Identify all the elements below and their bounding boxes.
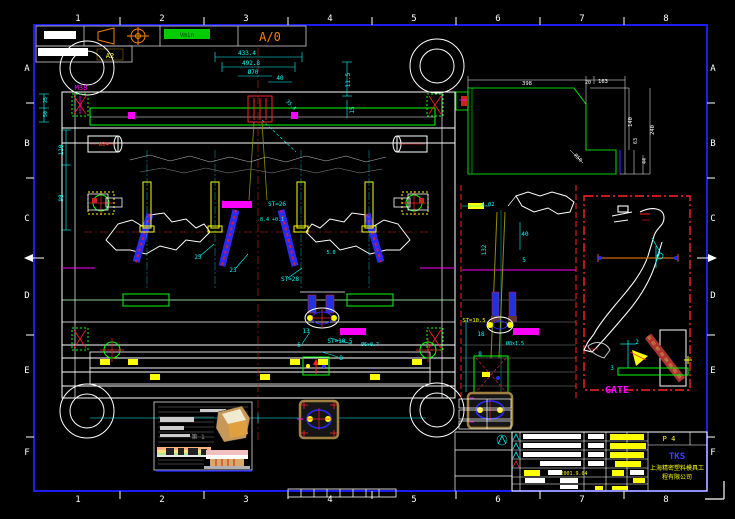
- oval-insert-detail-2: [468, 393, 512, 428]
- dim-label: 240: [650, 125, 656, 135]
- title-block: P 4 TKS 上海精密塑料模具工 程有限公司: [512, 432, 707, 491]
- dim-label: 第 1: [191, 433, 205, 441]
- dim-label: 398: [522, 81, 532, 87]
- grid-label-col: 6: [495, 495, 500, 505]
- ejector-screws: [100, 359, 422, 380]
- page-label: P 4: [663, 435, 676, 443]
- dim-label: Ø70: [248, 69, 259, 76]
- grid-label-col: 5: [411, 495, 416, 505]
- company-name-line1: 上海精密塑料模具工: [650, 464, 704, 472]
- badge-label: Vmin: [180, 32, 195, 39]
- stamp-bar: [44, 31, 76, 39]
- dim-label: 140: [628, 117, 634, 127]
- revision-symbols: [513, 434, 519, 467]
- dim-label: 4.02: [481, 202, 494, 208]
- revision-label: A/0: [259, 30, 281, 44]
- border-frame: 12345678 12345678 ABCDEF ABCDEF: [24, 14, 724, 505]
- note-text-blobs: [160, 409, 226, 437]
- grid-label-row: D: [710, 291, 715, 301]
- dim-label: ST=26: [268, 201, 286, 208]
- company-name-line2: 程有限公司: [662, 473, 692, 481]
- plate-profile-detail: [456, 76, 650, 174]
- dim-label: GATE: [605, 385, 629, 396]
- section-detail-box: [461, 185, 576, 400]
- first-angle-projection-icon: [98, 27, 149, 45]
- dim-label: 8: [478, 351, 482, 358]
- dim-label: 5.0: [326, 250, 335, 256]
- elevation-thumbnail: [204, 450, 250, 469]
- grid-label-row: E: [24, 366, 29, 376]
- dim-label: ST=10.5: [327, 338, 353, 345]
- dim-label: 40: [276, 75, 284, 82]
- title-bars: [523, 434, 646, 490]
- dim-label: 25: [43, 97, 49, 103]
- grid-label-row: D: [24, 291, 29, 301]
- clamp-slot-boxes: [72, 94, 443, 350]
- dim-label: 11.5: [345, 72, 352, 87]
- clamp-slot-marks: [74, 96, 441, 348]
- gate-feed-detail: [588, 330, 692, 386]
- dim-label: 433.4: [238, 50, 256, 57]
- dim-label: 40: [521, 231, 529, 238]
- rainbow-strip: [157, 447, 211, 457]
- bumper-section-profile: [584, 206, 664, 352]
- dim-label: 63: [633, 138, 639, 144]
- grid-label-col: 7: [579, 495, 584, 505]
- dim-label: 44: [642, 158, 648, 164]
- dim-label: R50: [572, 153, 583, 164]
- grid-label-row: F: [24, 448, 29, 458]
- gate-detail-box: [584, 196, 692, 390]
- grid-label-col: 4: [327, 495, 332, 505]
- oval-insert-assembly: [300, 292, 366, 375]
- dim-label: 8: [339, 355, 343, 362]
- title-strip: [455, 432, 512, 491]
- side-core-cylinder: [88, 136, 427, 152]
- grid-label-row: B: [710, 139, 715, 149]
- surface-finish-icon: [497, 435, 507, 445]
- dim-label: 3: [610, 365, 614, 372]
- grid-label-col: 8: [663, 14, 668, 24]
- dim-label: Ø24: [99, 141, 110, 148]
- cad-drawing: 12345678 12345678 ABCDEF ABCDEF: [0, 0, 735, 519]
- grid-label-col: 1: [75, 495, 80, 505]
- grid-label-col: 3: [243, 495, 248, 505]
- grid-row-labels-right: ABCDEF: [710, 64, 716, 458]
- dim-label: 18: [477, 331, 485, 338]
- dim-label: 23: [229, 267, 237, 274]
- main-plan-view: [39, 39, 464, 440]
- dim-label: 25: [194, 254, 202, 261]
- lifter-slides: [136, 210, 381, 266]
- sprue-bushing: [248, 96, 272, 122]
- dim-label: 2: [635, 339, 639, 346]
- dim-label: 5: [522, 257, 526, 264]
- grid-label-col: 2: [159, 495, 164, 505]
- grid-label-col: 7: [579, 14, 584, 24]
- grid-label-row: C: [24, 214, 29, 224]
- magenta-bar: [222, 201, 252, 208]
- dim-label: 35.4: [284, 99, 297, 112]
- oval-insert-detail-1: [297, 401, 338, 438]
- dim-label: ST=10.5: [462, 318, 485, 324]
- dim-label: 163: [598, 79, 608, 85]
- dim-label: 2001.9.04: [560, 471, 587, 477]
- grid-label-col: 6: [495, 14, 500, 24]
- grid-label-row: A: [710, 64, 716, 74]
- dim-label: 8.4 +0.1: [260, 217, 284, 223]
- drawing-canvas[interactable]: 12345678 12345678 ABCDEF ABCDEF: [0, 0, 735, 519]
- grid-label-row: C: [710, 214, 715, 224]
- dim-label: ST=28: [281, 276, 299, 283]
- dim-label: M38: [75, 84, 88, 92]
- grid-label-col: 3: [243, 14, 248, 24]
- dim-label: 15: [349, 106, 356, 114]
- grid-label-row: E: [710, 366, 715, 376]
- dim-label: 492.8: [242, 60, 260, 67]
- grid-label-col: 5: [411, 14, 416, 24]
- company-logo: TKS: [669, 452, 685, 462]
- dim-label: 132: [481, 244, 488, 255]
- grid-label-col: 2: [159, 14, 164, 24]
- dim-label: 20: [585, 80, 591, 86]
- dim-label: 5: [297, 342, 301, 349]
- dim-label: 98: [58, 194, 65, 202]
- dim-label: 50: [43, 111, 49, 117]
- grid-label-col: 1: [75, 14, 80, 24]
- dim-label: Ø8×1.5: [506, 340, 524, 347]
- grid-label-row: B: [24, 139, 29, 149]
- dim-label: 110: [58, 144, 65, 155]
- grid-label-col: 4: [327, 14, 332, 24]
- corner-stamp: Vmin A/0 A2: [36, 26, 306, 62]
- grid-label-col: 8: [663, 495, 668, 505]
- grid-label-row: F: [710, 448, 715, 458]
- grid-label-row: A: [24, 64, 30, 74]
- iso-thumbnail: [216, 406, 250, 442]
- dim-label: Ø6×0.7: [361, 341, 379, 348]
- grid-row-labels-left: ABCDEF: [24, 64, 30, 458]
- dim-label: 13: [302, 328, 310, 335]
